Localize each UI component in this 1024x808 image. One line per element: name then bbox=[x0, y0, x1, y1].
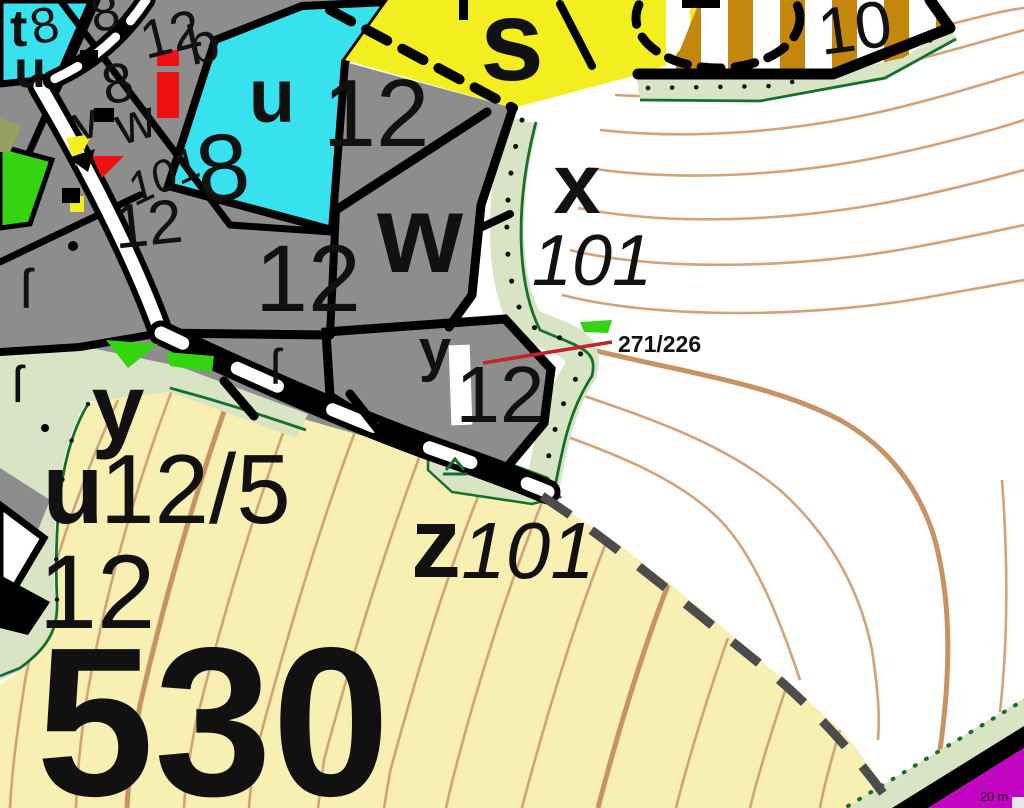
label-12-mid: 12 bbox=[456, 350, 545, 439]
forestry-map-canvas[interactable]: ſ ſ ſ t 8 u 8 12 b 8 v w 101 8 12 u 12 s… bbox=[0, 0, 1024, 808]
label-x: x bbox=[553, 137, 600, 232]
annotation-ref: 271/226 bbox=[618, 331, 701, 357]
label-u-beige: u bbox=[42, 433, 103, 545]
label-12b: 12 bbox=[110, 187, 186, 263]
label-y-mid: y bbox=[419, 318, 451, 383]
label-w: w bbox=[376, 173, 463, 296]
label-u-cyan: u bbox=[249, 54, 295, 139]
hook-symbol: ſ bbox=[270, 339, 283, 395]
label-530: 530 bbox=[36, 603, 390, 808]
scale-label: 20 m bbox=[980, 790, 1008, 804]
label-x-num: 101 bbox=[532, 221, 652, 301]
label-12-big: 12 bbox=[255, 226, 361, 332]
label-s: s bbox=[480, 0, 544, 105]
label-u-cluster: u bbox=[14, 41, 46, 99]
label-8d: 8 bbox=[191, 113, 255, 224]
label-12-top: 12 bbox=[323, 60, 430, 167]
label-z-num: 101 bbox=[461, 506, 594, 595]
label-10: 10 bbox=[813, 0, 896, 69]
label-12-5: 12/5 bbox=[100, 434, 291, 544]
label-z: z bbox=[411, 487, 461, 599]
